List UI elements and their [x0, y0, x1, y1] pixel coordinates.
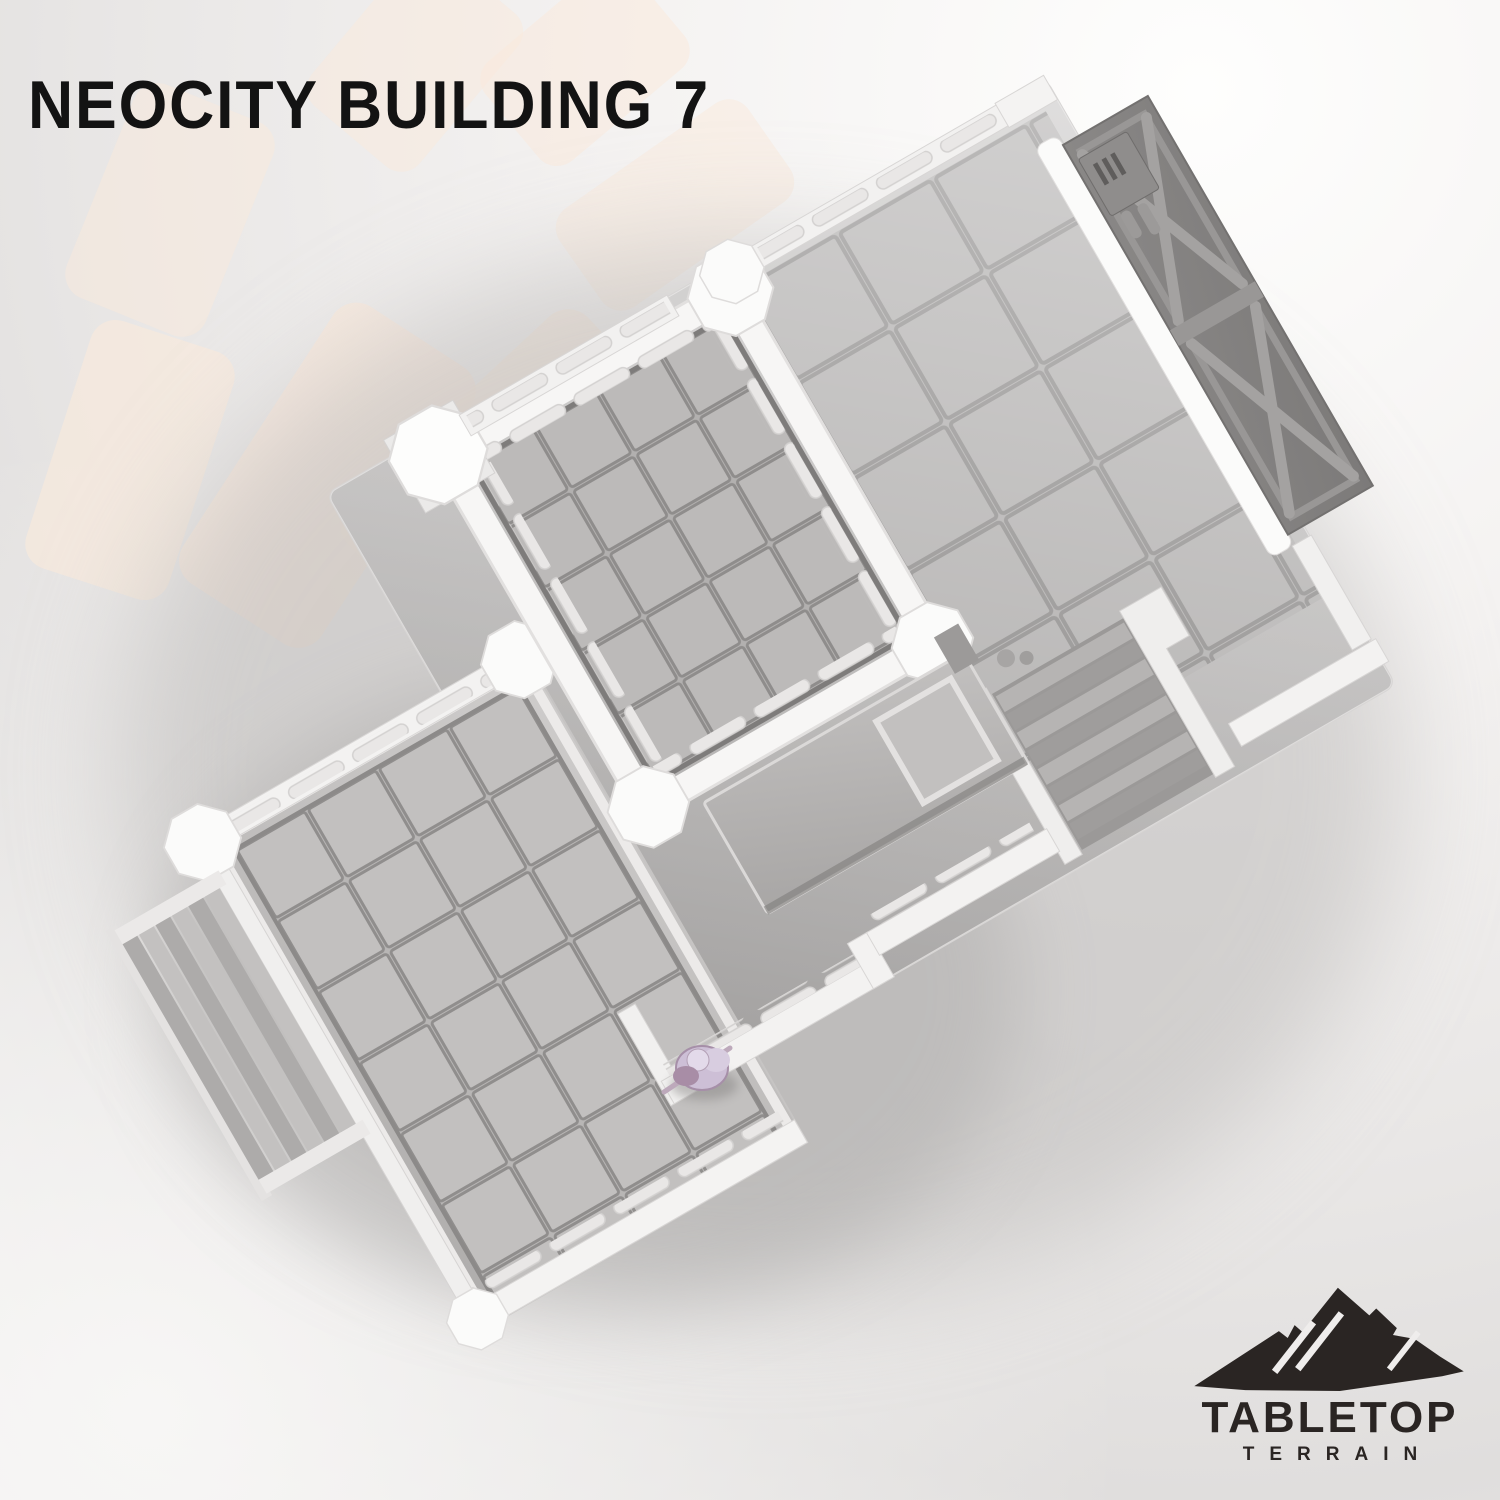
page-title: NEOCITY BUILDING 7: [28, 66, 710, 144]
mountain-icon: [1191, 1276, 1469, 1394]
brand-logo: TABLETOP TERRAIN: [1180, 1276, 1480, 1466]
brand-name: TABLETOP: [1201, 1396, 1458, 1441]
brand-subname: TERRAIN: [1243, 1444, 1432, 1466]
product-render-page: { "page": { "title": "NEOCITY BUILDING 7…: [0, 0, 1500, 1500]
building-render-scene: [0, 0, 1500, 1500]
